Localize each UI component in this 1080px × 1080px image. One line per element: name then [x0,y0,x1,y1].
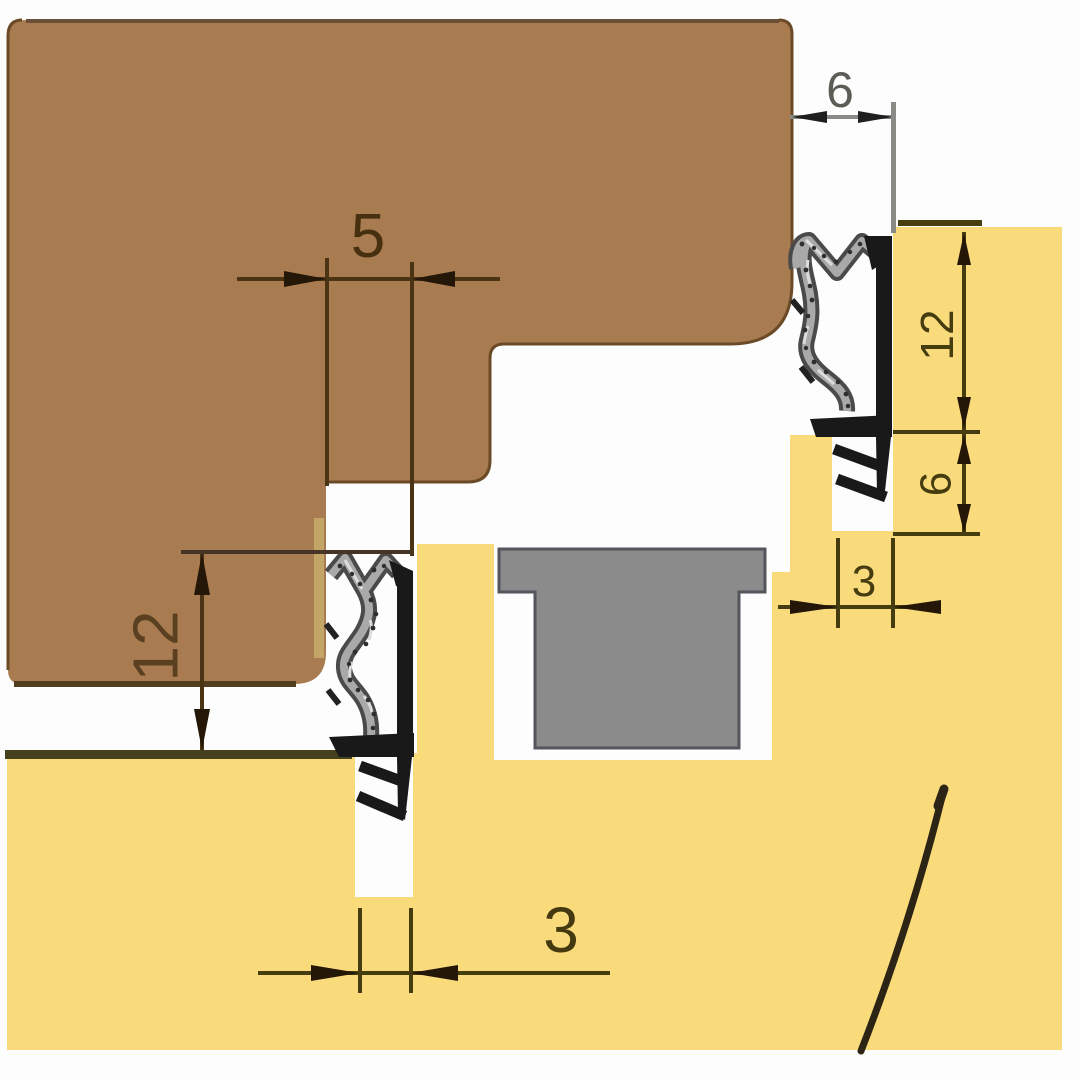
svg-text:5: 5 [351,202,385,271]
svg-text:6: 6 [826,62,854,118]
svg-text:12: 12 [119,610,191,681]
svg-text:3: 3 [543,894,579,966]
svg-text:12: 12 [911,309,963,360]
svg-text:3: 3 [852,557,876,606]
svg-text:6: 6 [911,472,960,496]
